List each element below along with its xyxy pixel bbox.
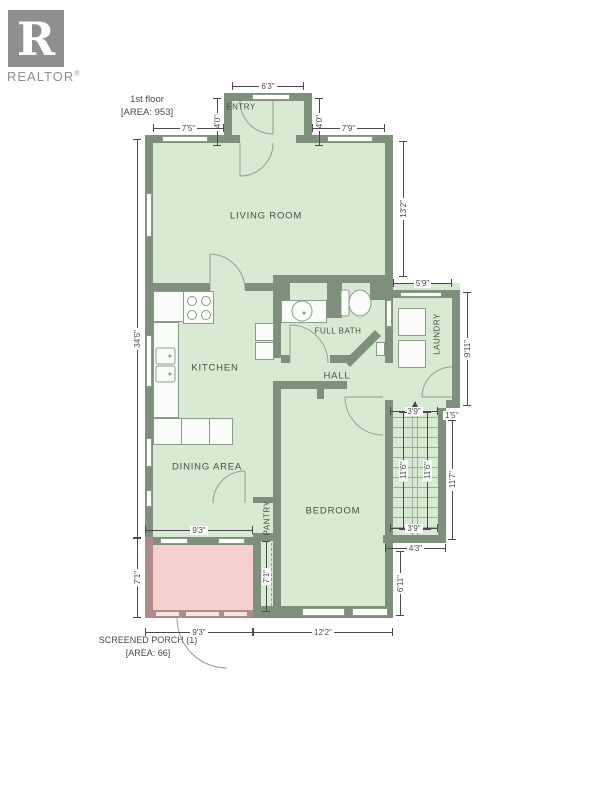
sink-drain <box>303 312 306 315</box>
room-label-bedroom: BEDROOM <box>306 506 361 517</box>
door-arc-living <box>240 143 273 176</box>
dimension-stairs-jog: 1'5" <box>443 411 462 420</box>
door-arc-kitchen <box>210 254 245 290</box>
door-arc-dining <box>213 471 245 503</box>
toilet-tank <box>341 290 349 316</box>
dimension-bedroom-width: 12'2" <box>253 627 393 637</box>
room-label-entry: ENTRY <box>226 103 255 112</box>
kitchen-sink <box>156 366 175 382</box>
dimension-stairs-width-bottom: 3'9" <box>390 523 438 533</box>
toilet-bowl <box>349 290 371 316</box>
dimension-living-depth: 13'2" <box>398 141 408 277</box>
dimension-front-left: 7'5" <box>153 123 224 133</box>
stove-burner <box>188 297 197 306</box>
plan-overlay <box>0 0 612 792</box>
bath-sink <box>292 301 312 321</box>
dimension-house-depth: 34'5" <box>132 139 142 539</box>
room-label-pantry: PANTRY <box>263 501 272 536</box>
stove-burner <box>188 311 197 320</box>
dimension-corridor-depth: 7'1" <box>261 541 271 612</box>
stove-burner <box>202 297 211 306</box>
angled-wall <box>344 330 381 367</box>
room-label-dining: DINING AREA <box>172 462 242 473</box>
room-label-living: LIVING ROOM <box>230 211 302 222</box>
dimension-porch-width-top: 9'3" <box>145 525 253 535</box>
door-arc-bedroom <box>345 397 383 435</box>
dimension-stairs-outer: 11'7" <box>447 420 457 540</box>
room-label-bath: FULL BATH <box>315 327 362 336</box>
room-label-laundry: LAUNDRY <box>433 313 442 355</box>
dimension-bedroom-depth: 6'11" <box>395 551 405 616</box>
dimension-entry-right: 4'0" <box>314 98 324 146</box>
dimension-porch-depth: 7'1" <box>132 537 142 618</box>
door-arc-laundry <box>422 367 452 397</box>
dimension-porch-width-bottom: 9'3" <box>145 627 253 637</box>
dimension-laundry-depth: 9'11" <box>462 292 472 406</box>
dimension-laundry-width: 5'9" <box>393 278 452 288</box>
dimension-front-right: 7'9" <box>312 123 385 133</box>
floor-plan: R REALTOR® 1st floor [AREA: 953] SCREENE… <box>0 0 612 792</box>
dimension-stairs-run-left: 11'6" <box>398 412 408 530</box>
sink-drain <box>169 355 172 358</box>
dimension-stairs-run-right: 11'6" <box>422 412 432 530</box>
kitchen-sink <box>156 348 175 364</box>
dimension-entry-width: 6'3" <box>232 81 304 91</box>
room-label-kitchen: KITCHEN <box>191 363 238 374</box>
dimension-entry-left: 4'0" <box>212 98 222 146</box>
room-label-hall: HALL <box>324 371 351 382</box>
stove-burner <box>202 311 211 320</box>
door-arc-porch <box>177 618 227 668</box>
sink-drain <box>169 373 172 376</box>
